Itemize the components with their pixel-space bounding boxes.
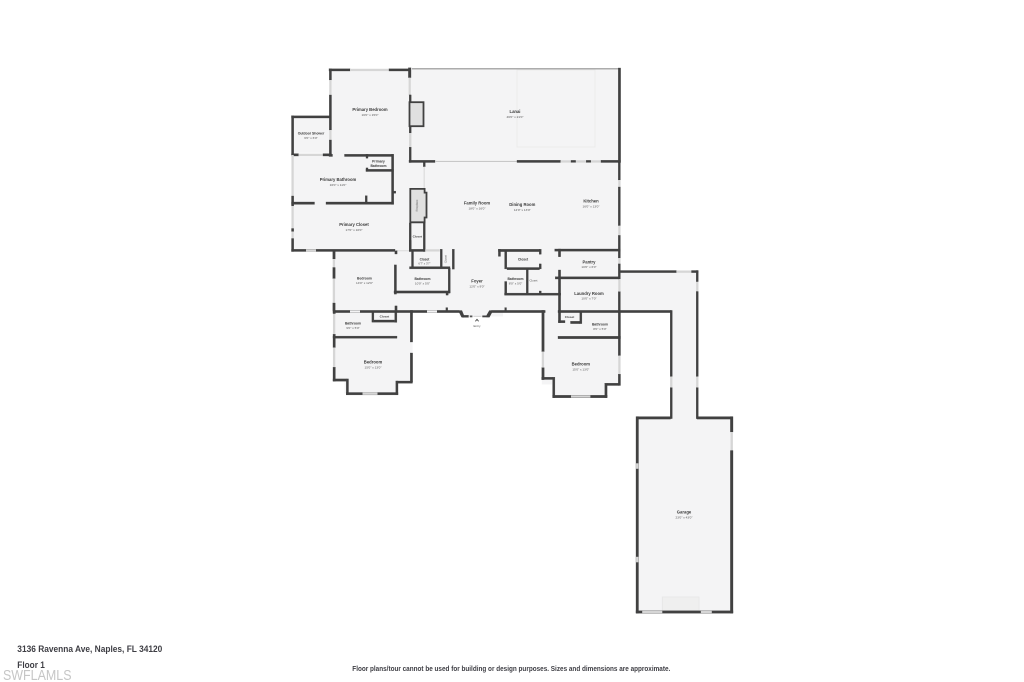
svg-text:9'0" x 5'0": 9'0" x 5'0" xyxy=(346,326,360,330)
svg-text:SWFLAMLS: SWFLAMLS xyxy=(3,668,72,682)
svg-text:15'0" x 13'0": 15'0" x 13'0" xyxy=(365,366,382,370)
svg-text:Family Room: Family Room xyxy=(464,201,491,206)
svg-text:Closet: Closet xyxy=(444,255,448,263)
svg-text:Bedroom: Bedroom xyxy=(572,362,591,367)
svg-text:Laundry Room: Laundry Room xyxy=(574,291,604,296)
svg-text:46'0" x 21'0": 46'0" x 21'0" xyxy=(507,115,524,119)
svg-text:10'0" x 5'0": 10'0" x 5'0" xyxy=(415,282,430,286)
svg-text:Outdoor Shower: Outdoor Shower xyxy=(298,132,325,136)
svg-text:10'0" x 6'0": 10'0" x 6'0" xyxy=(581,265,596,269)
svg-text:18'0" x 16'0": 18'0" x 16'0" xyxy=(469,207,486,211)
svg-text:Floor plans/tour cannot be use: Floor plans/tour cannot be used for buil… xyxy=(352,665,670,673)
svg-text:Foyer: Foyer xyxy=(471,279,483,284)
svg-text:Entry: Entry xyxy=(473,324,481,328)
svg-text:23'0" x 43'0": 23'0" x 43'0" xyxy=(676,516,693,520)
svg-text:16'0" x 11'0": 16'0" x 11'0" xyxy=(330,183,347,187)
svg-text:8'0" x 5'0": 8'0" x 5'0" xyxy=(593,327,607,331)
svg-text:12'0" x 9'0": 12'0" x 9'0" xyxy=(469,285,484,289)
svg-text:Fireplace: Fireplace xyxy=(415,199,419,211)
svg-text:Closet: Closet xyxy=(565,315,574,319)
svg-text:Bathroom: Bathroom xyxy=(370,164,386,168)
svg-text:Primary: Primary xyxy=(372,159,385,163)
svg-text:Lanai: Lanai xyxy=(510,109,521,114)
svg-text:Pantry: Pantry xyxy=(582,260,596,265)
svg-text:Bathroom: Bathroom xyxy=(345,322,361,326)
svg-text:14'0" x 12'0": 14'0" x 12'0" xyxy=(356,281,373,285)
svg-text:17'0" x 10'0": 17'0" x 10'0" xyxy=(346,228,363,232)
svg-text:16'0" x 13'0": 16'0" x 13'0" xyxy=(583,205,600,209)
svg-text:8'0" x 5'0": 8'0" x 5'0" xyxy=(509,282,523,286)
svg-text:Bathroom: Bathroom xyxy=(414,277,430,281)
svg-text:Primary Closet: Primary Closet xyxy=(339,222,369,227)
svg-text:Dining Room: Dining Room xyxy=(509,202,535,207)
svg-text:Bathroom: Bathroom xyxy=(507,277,523,281)
svg-text:Bedroom: Bedroom xyxy=(364,360,383,365)
svg-text:14'0" x 13'0": 14'0" x 13'0" xyxy=(514,208,531,212)
svg-text:Garage: Garage xyxy=(677,510,692,515)
svg-text:15'0" x 13'0": 15'0" x 13'0" xyxy=(572,368,589,372)
svg-text:Primary Bedroom: Primary Bedroom xyxy=(352,107,387,112)
svg-text:Closet: Closet xyxy=(518,258,529,262)
svg-text:6'0" x 6'0": 6'0" x 6'0" xyxy=(304,136,318,140)
svg-text:Closet: Closet xyxy=(380,315,389,319)
svg-text:Primary Bathroom: Primary Bathroom xyxy=(320,177,357,182)
svg-text:16'0" x 15'0": 16'0" x 15'0" xyxy=(362,113,379,117)
svg-text:Closet: Closet xyxy=(530,279,538,283)
svg-text:3136 Ravenna Ave, Naples, FL 3: 3136 Ravenna Ave, Naples, FL 34120 xyxy=(17,644,162,655)
svg-text:Bathroom: Bathroom xyxy=(592,323,608,327)
svg-text:Kitchen: Kitchen xyxy=(583,199,599,204)
svg-text:Closet: Closet xyxy=(413,235,422,239)
svg-text:6'7" x 3'7": 6'7" x 3'7" xyxy=(418,262,430,266)
svg-text:Bedroom: Bedroom xyxy=(357,277,372,281)
svg-text:10'0" x 7'0": 10'0" x 7'0" xyxy=(581,297,596,301)
